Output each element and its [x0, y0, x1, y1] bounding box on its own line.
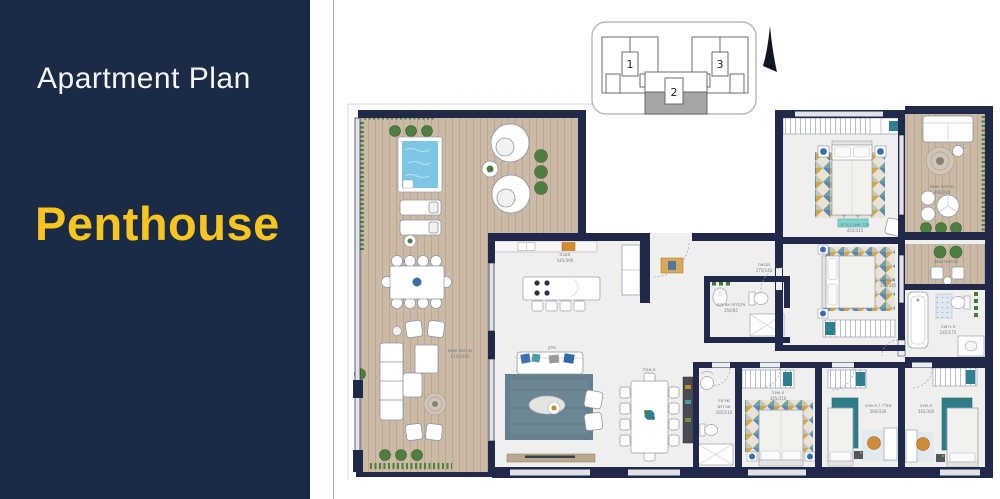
double-bed: [832, 141, 872, 215]
svg-text:3: 3: [717, 58, 724, 71]
svg-text:275/145: 275/145: [756, 268, 773, 273]
svg-text:345/300: 345/300: [918, 409, 935, 414]
balcony-sofa: [923, 116, 973, 142]
svg-text:150/85: 150/85: [724, 308, 739, 313]
living-label: סלון: [548, 346, 556, 351]
desk: [884, 428, 897, 460]
key-plan: 1 3 2: [592, 22, 756, 114]
floor-plan: 1 3 2: [340, 0, 1000, 499]
north-arrow-icon: [763, 26, 777, 72]
toilet-icon: [700, 424, 718, 436]
bed: [822, 256, 875, 308]
single-bed: [947, 408, 978, 467]
vertical-divider: [333, 0, 334, 499]
coffee-table: [529, 396, 565, 414]
tv: [525, 456, 575, 459]
pool: [398, 137, 442, 192]
desk: [906, 430, 917, 462]
svg-text:2: 2: [671, 86, 678, 99]
svg-text:260/330: 260/330: [870, 409, 887, 414]
guest-wc-label: שירותי: [718, 399, 729, 404]
toilet-icon: [951, 296, 970, 309]
desk-chair: [868, 437, 881, 450]
desk-chair: [917, 438, 930, 451]
bedroom2: [818, 245, 895, 337]
svg-text:490/285: 490/285: [934, 190, 951, 195]
svg-text:345/310: 345/310: [770, 396, 787, 401]
floor-plan-svg: 1 3 2: [340, 0, 1000, 499]
page: Apartment Plan Penthouse: [0, 0, 1000, 499]
single-bed: [828, 408, 853, 466]
dining-label: פ.אוכל: [643, 368, 656, 373]
svg-text:1: 1: [627, 58, 634, 71]
page-title: Apartment Plan: [37, 62, 251, 96]
round-rug: [424, 393, 446, 415]
plant-icon: [390, 126, 433, 137]
bath-rug: [936, 294, 952, 318]
svg-text:1150/490: 1150/490: [450, 354, 470, 359]
svg-text:455/415: 455/415: [847, 228, 864, 233]
balcony2-label: מרפסת שמש: [934, 260, 958, 265]
sidebar: Apartment Plan Penthouse: [0, 0, 310, 499]
svg-text:335/345: 335/345: [880, 283, 897, 288]
toilet-icon: [749, 292, 768, 305]
svg-text:165/110: 165/110: [716, 410, 733, 415]
double-bed: [759, 410, 803, 466]
sofa: [517, 352, 583, 374]
apartment-name: Penthouse: [35, 196, 280, 251]
svg-text:245/175: 245/175: [940, 330, 957, 335]
svg-text:545/390: 545/390: [557, 258, 574, 263]
key-plan-unit-2-highlighted: 2: [645, 72, 707, 114]
